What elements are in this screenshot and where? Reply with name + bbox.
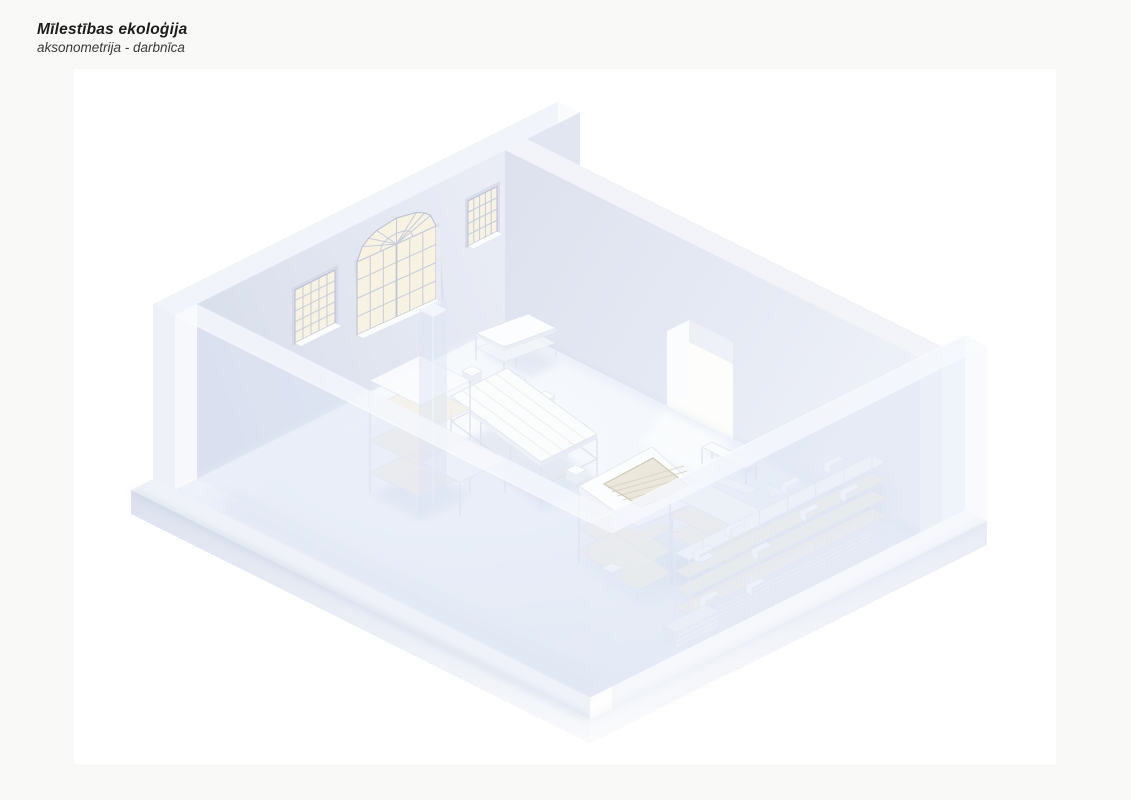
ghost-wall-end xyxy=(175,304,197,490)
window-reveal xyxy=(436,226,441,301)
page-title: Mīlestības ekoloģija xyxy=(37,20,187,39)
doorway-jamb xyxy=(667,320,689,406)
title-block: Mīlestības ekoloģija aksonometrija - dar… xyxy=(37,20,187,56)
axonometric-drawing xyxy=(0,0,1131,800)
page-subtitle: aksonometrija - darbnīca xyxy=(37,39,187,56)
page: { "page": { "background": "#f9faf7", "ca… xyxy=(0,0,1131,800)
ghost-wall-end xyxy=(965,335,987,521)
back-left-wall-end xyxy=(153,304,175,490)
